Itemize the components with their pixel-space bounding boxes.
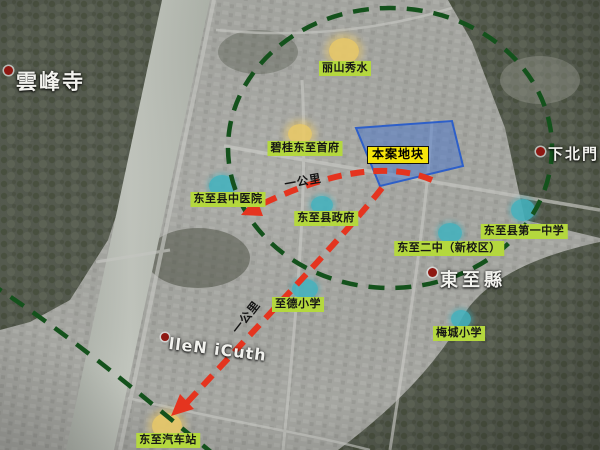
site-label: 本案地块 [367, 146, 429, 164]
place-dot-town [161, 333, 169, 341]
marker-no1-school [511, 199, 535, 221]
place-name-yunfengsi: 雲峰寺 [16, 66, 85, 96]
label-bus-station: 东至汽车站 [136, 433, 200, 448]
place-name-dongzhixian: 東至縣 [440, 266, 506, 292]
satellite-planning-map: 丽山秀水 碧桂东至首府 东至县中医院 东至县政府 东至二中（新校区） 东至县第一… [0, 0, 600, 450]
place-dot-xiabeimen [536, 147, 545, 156]
label-lishan-xiushui: 丽山秀水 [319, 61, 371, 76]
label-no2-school: 东至二中（新校区） [394, 241, 504, 256]
label-government: 东至县政府 [294, 211, 358, 226]
label-zhide-primary: 至德小学 [272, 297, 324, 312]
label-meicheng-primary: 梅城小学 [433, 326, 485, 341]
marker-no2-school [438, 223, 462, 243]
place-dot-dongzhixian [428, 268, 437, 277]
label-hospital: 东至县中医院 [191, 192, 266, 207]
place-name-xiabeimen: 下北門 [548, 143, 599, 164]
marker-zhide-primary [292, 279, 318, 299]
label-no1-school: 东至县第一中学 [481, 224, 568, 239]
place-dot-yunfengsi [4, 66, 13, 75]
label-bigui-shoufu: 碧桂东至首府 [268, 141, 343, 156]
